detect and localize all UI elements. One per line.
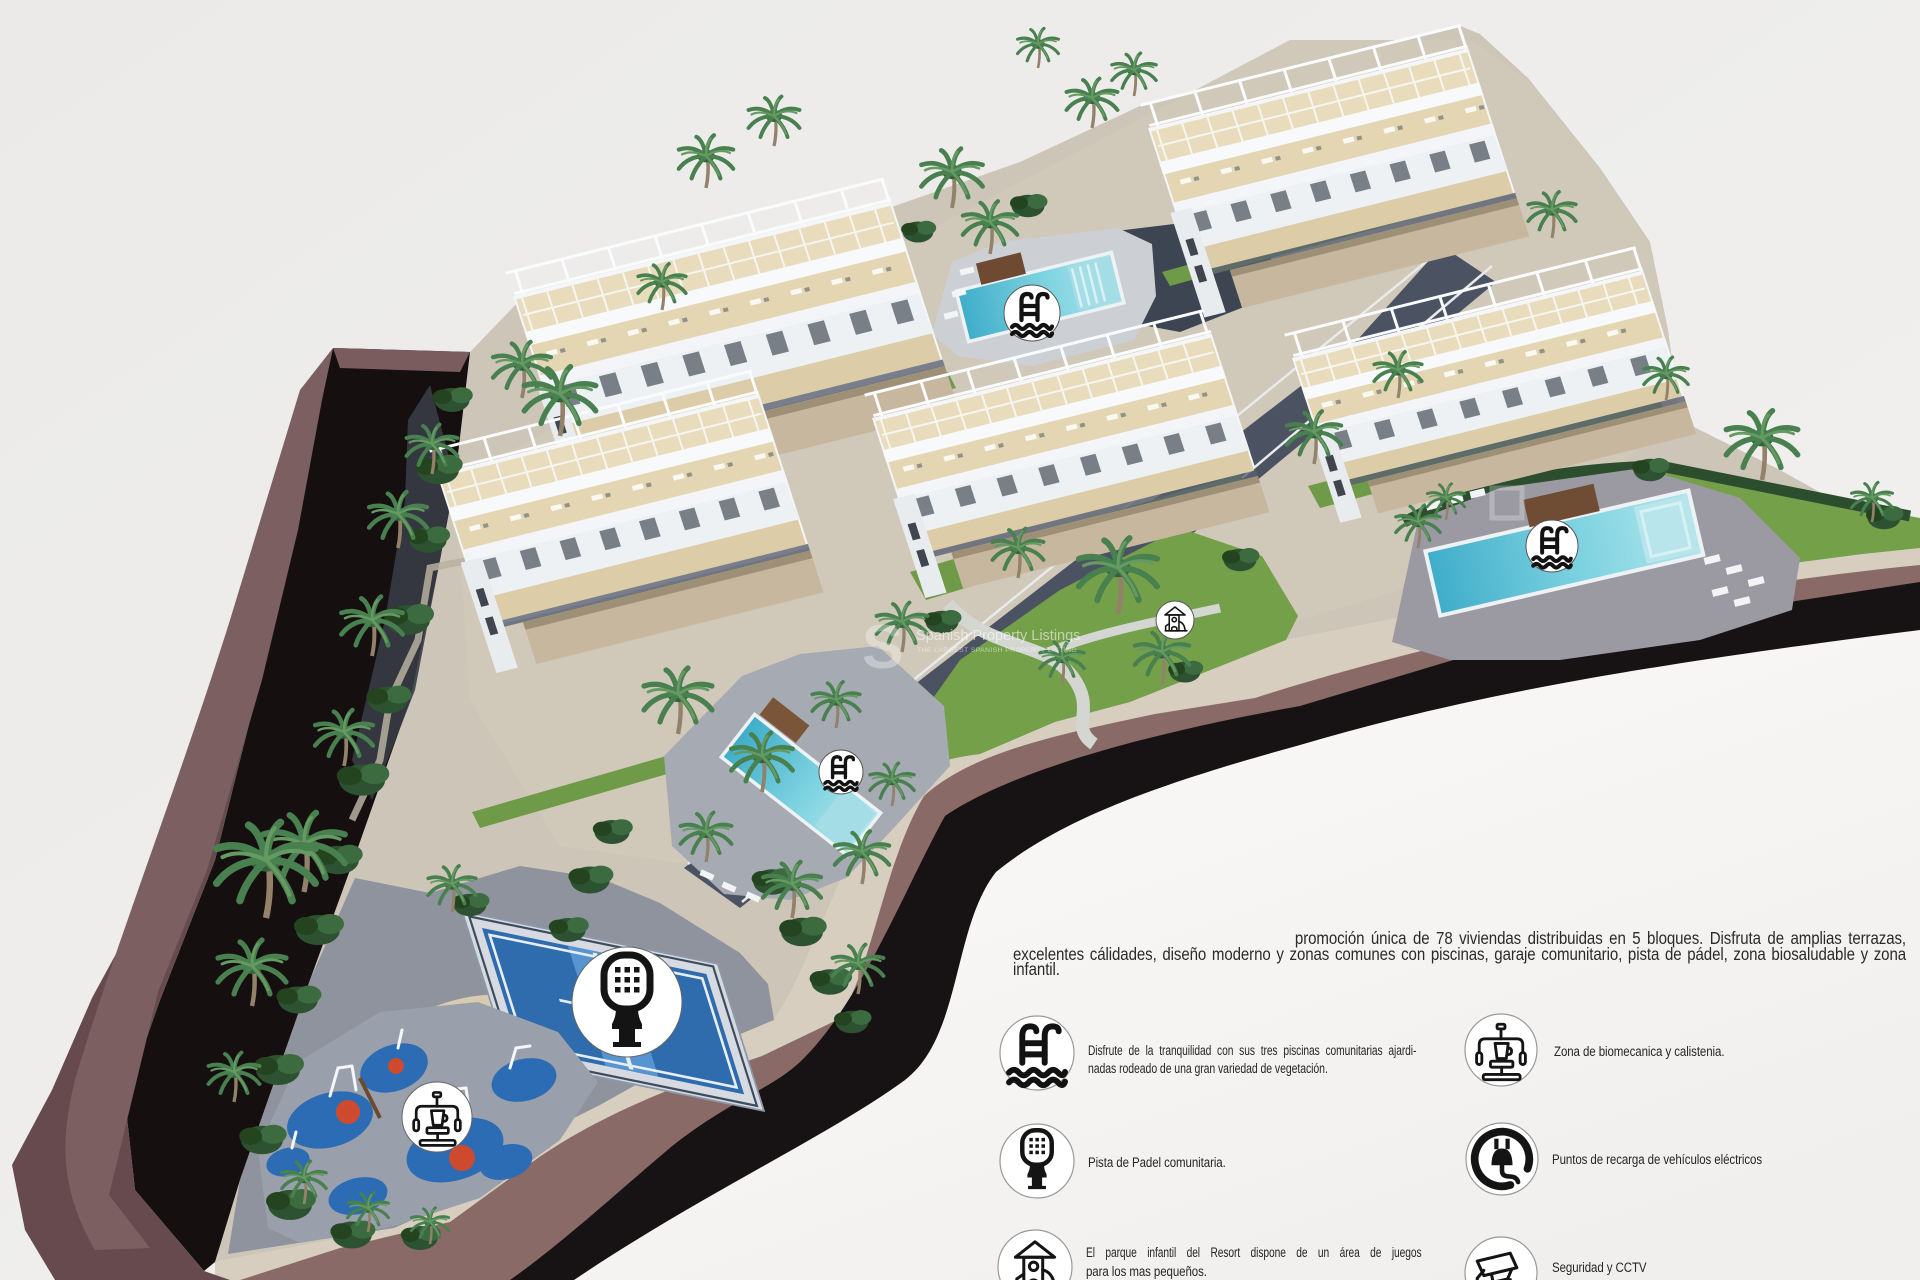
svg-text:THE LARGEST SPANISH PROPERTY L: THE LARGEST SPANISH PROPERTY LISTING: [917, 647, 1077, 654]
svg-text:Spanish Property Listings: Spanish Property Listings: [916, 628, 1080, 644]
svg-text:S: S: [862, 613, 903, 682]
